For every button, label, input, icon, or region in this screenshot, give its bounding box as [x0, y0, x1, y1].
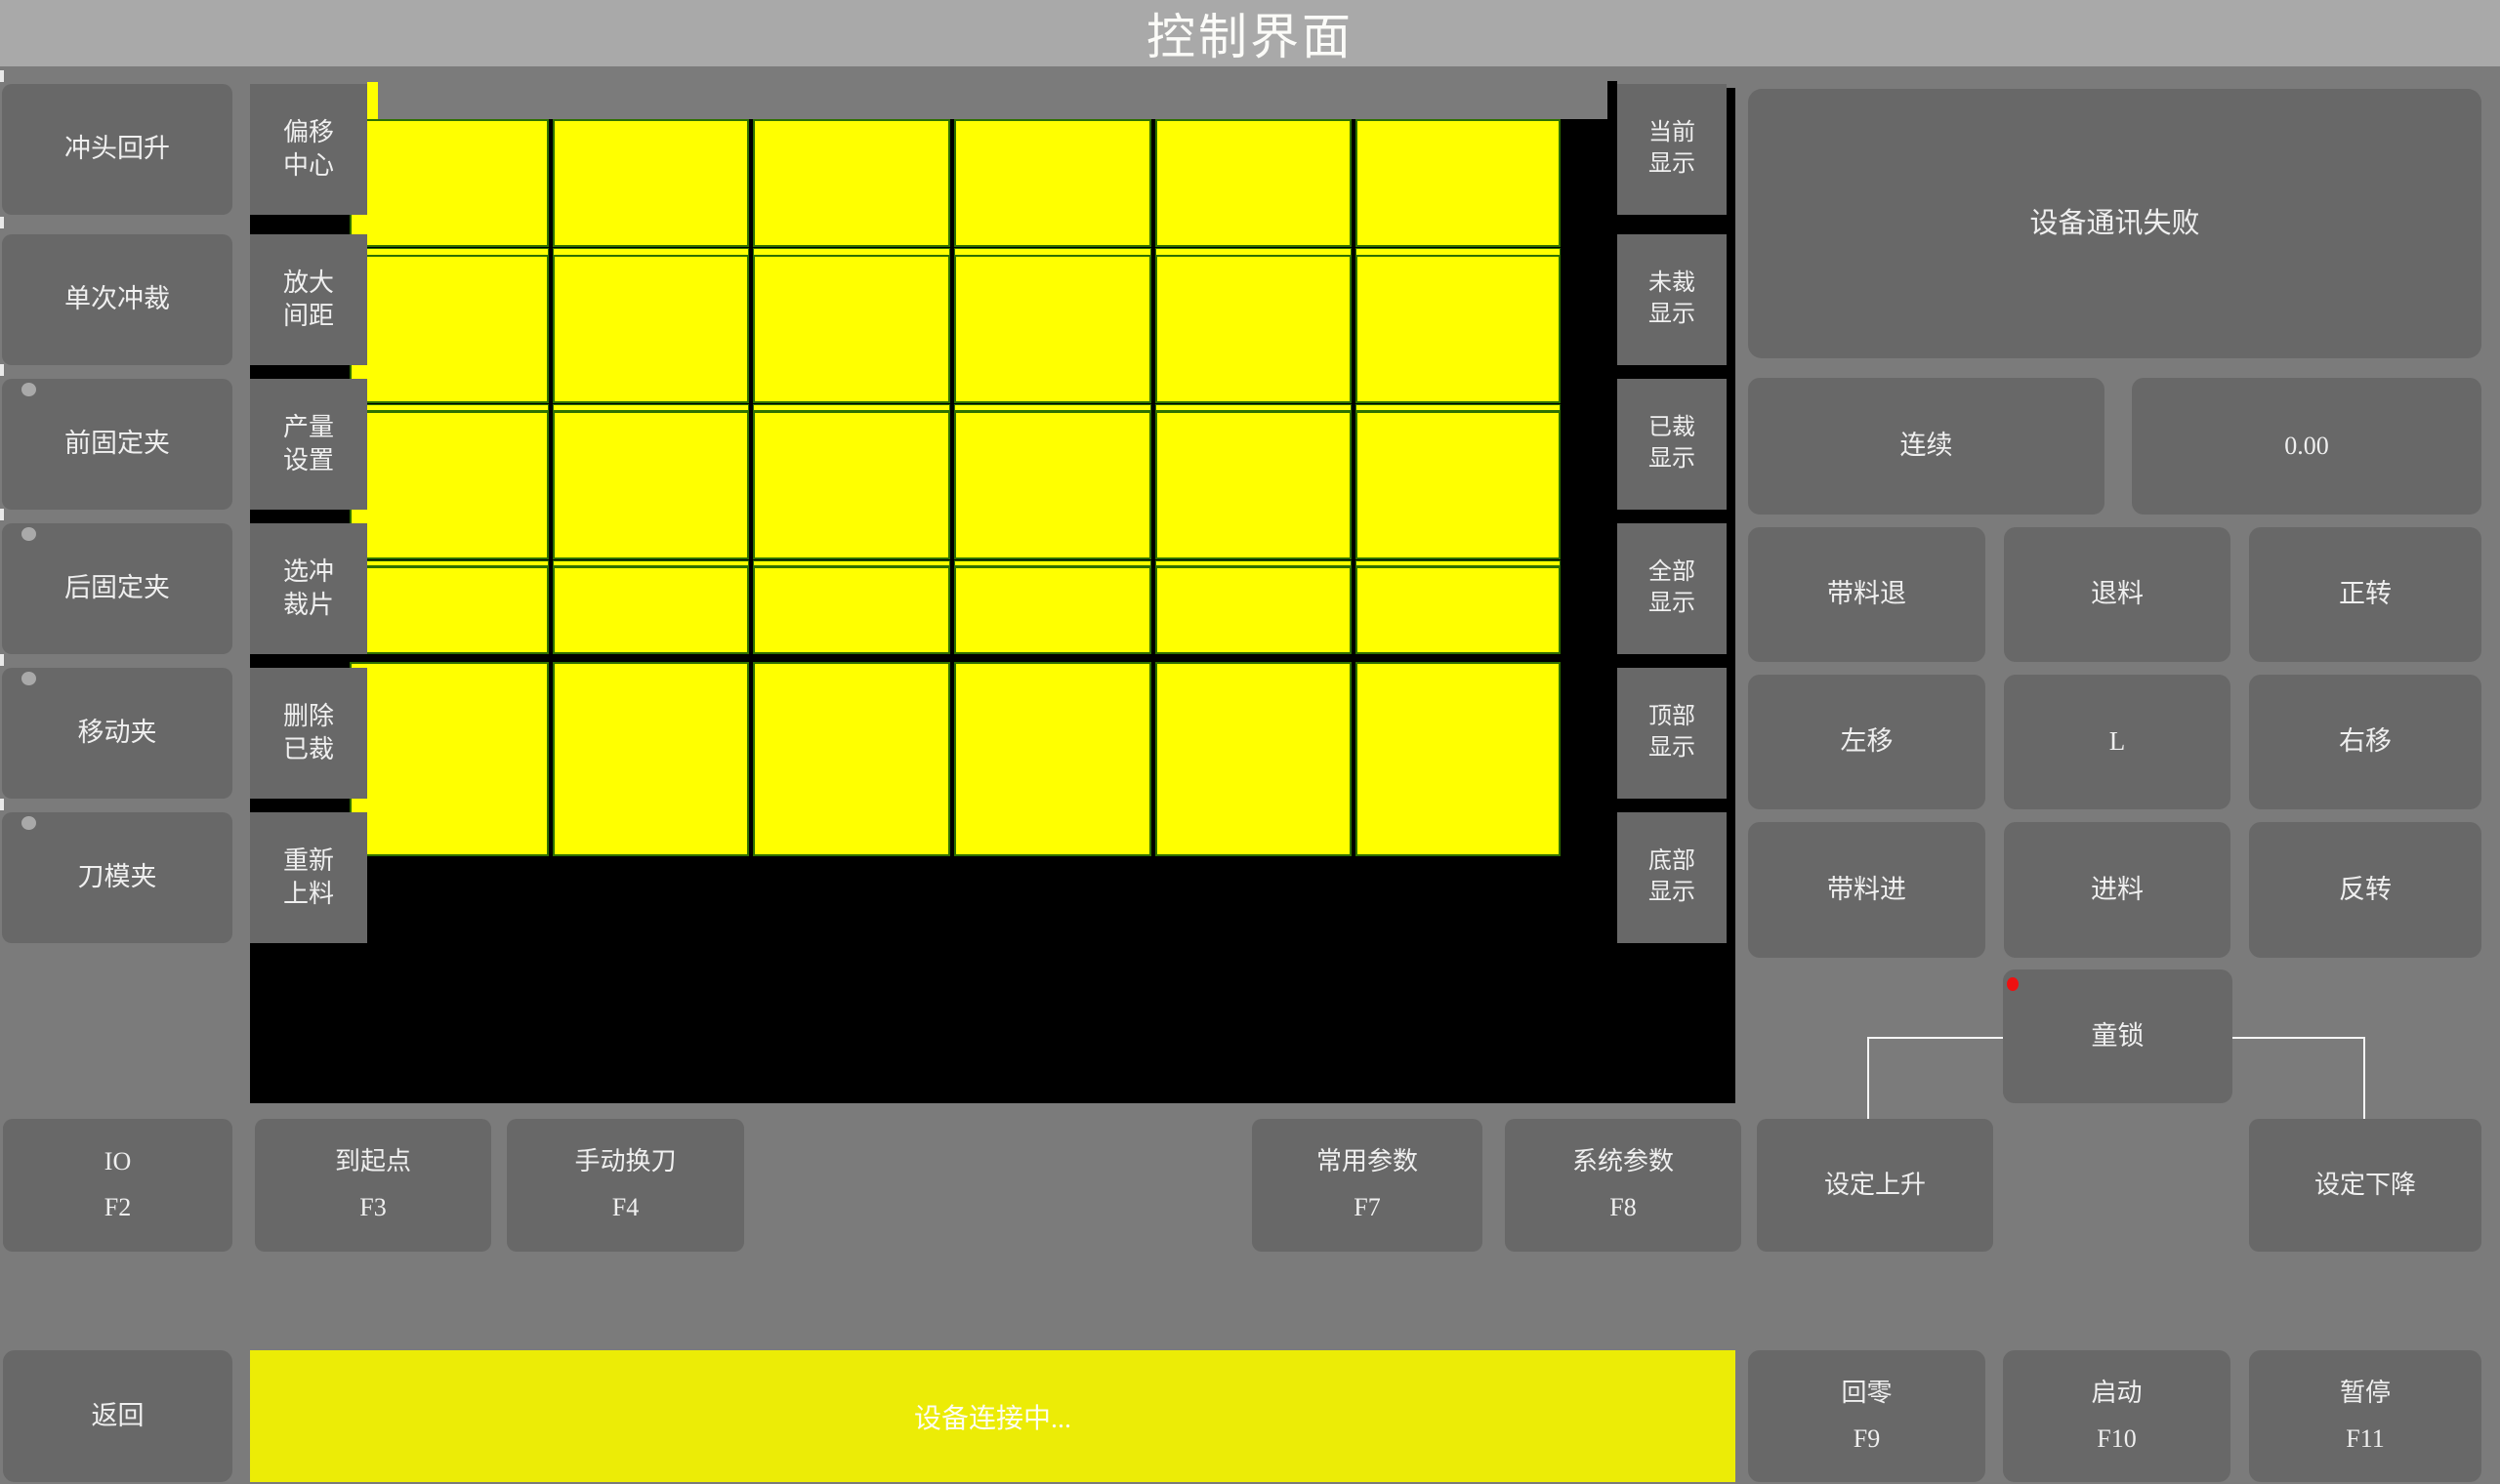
wire-right-vertical: [2363, 1037, 2365, 1119]
cut-piece[interactable]: [954, 255, 1151, 403]
cut-piece[interactable]: [350, 255, 549, 403]
cut-piece[interactable]: [954, 411, 1151, 559]
system-params-f8-button[interactable]: 系统参数 F8: [1505, 1119, 1741, 1252]
child-lock-label: 童锁: [2092, 1019, 2145, 1054]
cut-piece[interactable]: [753, 662, 950, 856]
cut-piece[interactable]: [954, 119, 1151, 247]
connection-status-bar: 设备连接中...: [250, 1350, 1735, 1482]
front-clamp-label: 前固定夹: [64, 427, 170, 462]
offcut-strip: [553, 404, 749, 411]
show-uncut-button[interactable]: 未裁 显示: [1617, 234, 1727, 365]
offcut-strip: [1155, 248, 1352, 256]
cut-piece[interactable]: [350, 662, 549, 856]
manual-tool-change-f4-button[interactable]: 手动换刀 F4: [507, 1119, 744, 1252]
cut-piece[interactable]: [1355, 119, 1561, 247]
offcut-strip: [954, 248, 1151, 256]
cut-piece[interactable]: [753, 411, 950, 559]
io-f2-button[interactable]: IO F2: [3, 1119, 232, 1252]
continuous-button[interactable]: 连续: [1748, 378, 2104, 515]
cut-piece[interactable]: [954, 662, 1151, 856]
edge-tick: [0, 70, 4, 82]
edge-tick: [0, 654, 4, 666]
delete-cut-button[interactable]: 删除 已裁: [250, 668, 367, 799]
cut-piece[interactable]: [1355, 255, 1561, 403]
home-f9-button[interactable]: 回零 F9: [1748, 1350, 1985, 1482]
cut-piece[interactable]: [350, 411, 549, 559]
cut-piece[interactable]: [1155, 119, 1352, 247]
set-lower-button[interactable]: 设定下降: [2249, 1119, 2481, 1252]
moving-clamp-label: 移动夹: [78, 716, 157, 751]
feed-material-button[interactable]: 进料: [2004, 822, 2230, 958]
offset-center-button[interactable]: 偏移 中心: [250, 84, 367, 215]
connection-status-text: 设备连接中...: [914, 1397, 1071, 1436]
die-clamp-button[interactable]: 刀模夹: [2, 812, 232, 943]
offcut-strip: [350, 404, 549, 411]
forward-rotate-button[interactable]: 正转: [2249, 527, 2481, 662]
show-all-button[interactable]: 全部 显示: [1617, 523, 1727, 654]
edge-tick: [0, 217, 4, 228]
l-button[interactable]: L: [2004, 675, 2230, 809]
offcut-strip: [1155, 560, 1352, 566]
yield-setting-button[interactable]: 产量 设置: [250, 379, 367, 510]
rear-clamp-label: 后固定夹: [64, 571, 170, 606]
rear-clamp-status-dot: [21, 527, 36, 541]
cut-piece[interactable]: [1155, 566, 1352, 654]
start-f10-button[interactable]: 启动 F10: [2003, 1350, 2230, 1482]
rear-clamp-button[interactable]: 后固定夹: [2, 523, 232, 654]
wire-right-horizontal: [2232, 1037, 2365, 1039]
offcut-strip: [1355, 560, 1561, 566]
wire-left-horizontal: [1868, 1037, 2003, 1039]
offcut-strip: [1155, 404, 1352, 411]
control-screen: 控制界面 冲头回升 单次冲裁 前固定夹 后固定夹 移动夹 刀模夹 偏移 中心 放…: [0, 0, 2500, 1484]
punch-raise-button[interactable]: 冲头回升: [2, 84, 232, 215]
cut-piece[interactable]: [753, 255, 950, 403]
child-lock-alarm-dot: [2007, 977, 2019, 991]
device-status-message: 设备通讯失败: [1748, 89, 2481, 358]
retract-material-button[interactable]: 退料: [2004, 527, 2230, 662]
offcut-strip: [954, 560, 1151, 566]
cut-piece[interactable]: [1155, 255, 1352, 403]
moving-clamp-button[interactable]: 移动夹: [2, 668, 232, 799]
edge-tick: [0, 799, 4, 810]
edge-piece: [367, 82, 378, 119]
offcut-strip: [753, 404, 950, 411]
cut-piece[interactable]: [1355, 411, 1561, 559]
offcut-strip: [553, 248, 749, 256]
select-piece-button[interactable]: 选冲 裁片: [250, 523, 367, 654]
cut-piece[interactable]: [553, 255, 749, 403]
show-bottom-button[interactable]: 底部 显示: [1617, 812, 1727, 943]
show-cut-button[interactable]: 已裁 显示: [1617, 379, 1727, 510]
feed-in-with-material-button[interactable]: 带料进: [1748, 822, 1985, 958]
cut-piece[interactable]: [954, 566, 1151, 654]
offcut-strip: [753, 560, 950, 566]
go-origin-f3-button[interactable]: 到起点 F3: [255, 1119, 491, 1252]
edge-tick: [0, 364, 4, 376]
child-lock-button[interactable]: 童锁: [2003, 969, 2232, 1103]
cut-piece[interactable]: [350, 566, 549, 654]
reverse-rotate-button[interactable]: 反转: [2249, 822, 2481, 958]
cut-piece[interactable]: [553, 566, 749, 654]
cut-piece[interactable]: [1355, 662, 1561, 856]
offcut-strip: [954, 404, 1151, 411]
page-title: 控制界面: [1146, 0, 1354, 68]
offcut-strip: [350, 248, 549, 256]
move-right-button[interactable]: 右移: [2249, 675, 2481, 809]
cut-piece[interactable]: [1155, 662, 1352, 856]
offcut-strip: [753, 248, 950, 256]
back-button[interactable]: 返回: [3, 1350, 232, 1482]
feed-back-with-material-button[interactable]: 带料退: [1748, 527, 1985, 662]
cut-piece[interactable]: [1155, 411, 1352, 559]
die-clamp-status-dot: [21, 816, 36, 830]
canvas-top-notch: [1607, 81, 1617, 119]
moving-clamp-status-dot: [21, 672, 36, 685]
value-display[interactable]: 0.00: [2132, 378, 2481, 515]
cut-piece[interactable]: [553, 119, 749, 247]
enlarge-gap-button[interactable]: 放大 间距: [250, 234, 367, 365]
single-punch-button[interactable]: 单次冲裁: [2, 234, 232, 365]
cut-canvas: [250, 88, 1735, 1103]
canvas-top-gap: [250, 88, 1607, 119]
wire-left-vertical: [1867, 1037, 1869, 1119]
offcut-strip: [553, 560, 749, 566]
title-bar: 控制界面: [0, 0, 2500, 66]
show-current-button[interactable]: 当前 显示: [1617, 84, 1727, 215]
set-raise-button[interactable]: 设定上升: [1757, 1119, 1993, 1252]
cut-piece[interactable]: [350, 119, 549, 247]
offcut-strip: [1355, 404, 1561, 411]
move-left-button[interactable]: 左移: [1748, 675, 1985, 809]
offcut-strip: [350, 560, 549, 566]
reload-material-button[interactable]: 重新 上料: [250, 812, 367, 943]
offcut-strip: [1355, 248, 1561, 256]
edge-tick: [0, 509, 4, 520]
show-top-button[interactable]: 顶部 显示: [1617, 668, 1727, 799]
common-params-f7-button[interactable]: 常用参数 F7: [1252, 1119, 1482, 1252]
front-clamp-button[interactable]: 前固定夹: [2, 379, 232, 510]
die-clamp-label: 刀模夹: [78, 860, 157, 895]
cut-piece[interactable]: [553, 662, 749, 856]
cut-piece[interactable]: [753, 119, 950, 247]
front-clamp-status-dot: [21, 383, 36, 396]
cut-piece[interactable]: [553, 411, 749, 559]
pause-f11-button[interactable]: 暂停 F11: [2249, 1350, 2481, 1482]
cut-piece[interactable]: [753, 566, 950, 654]
cut-piece[interactable]: [1355, 566, 1561, 654]
